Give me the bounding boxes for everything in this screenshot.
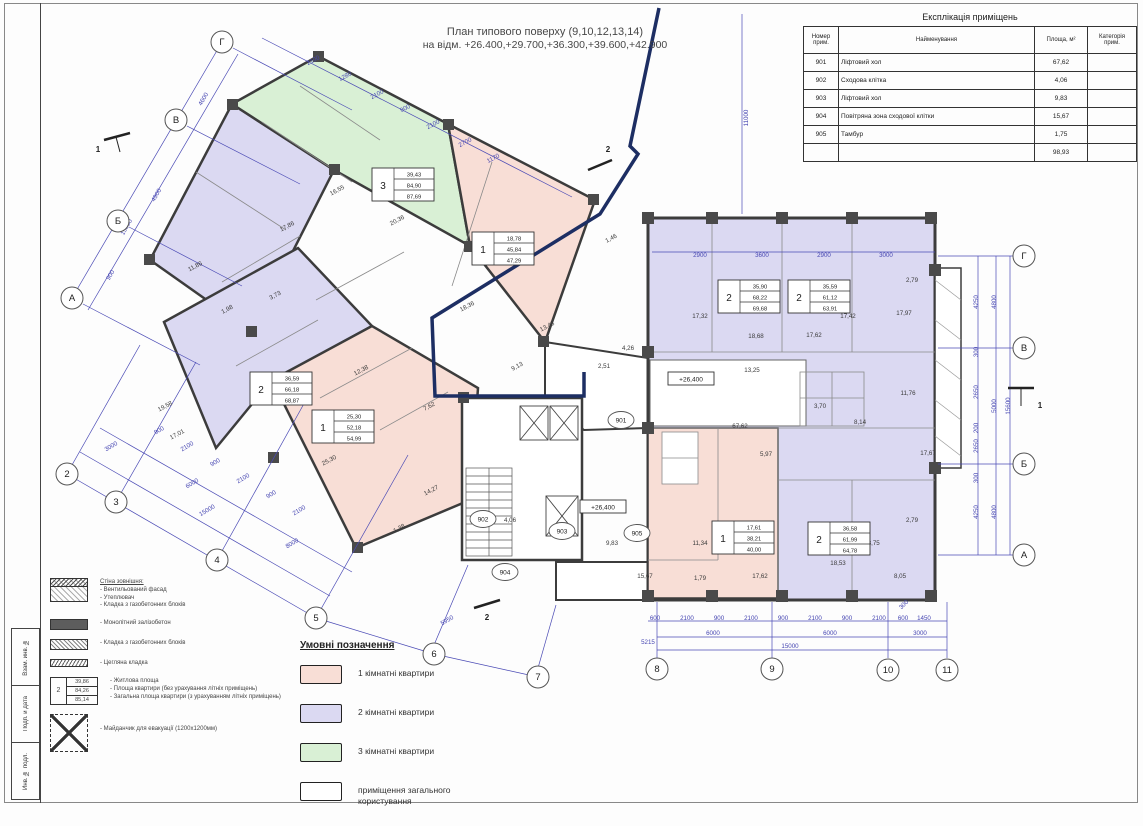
legend-item-2room: 2 кімнатні квартири xyxy=(300,704,500,723)
cell-number: 903 xyxy=(804,90,839,108)
cell-name: Сходова клітка xyxy=(839,72,1035,90)
stamp-sample-total: 85,14 xyxy=(67,696,97,704)
materials-monolith-row: - Монолітний залізобетон xyxy=(50,619,300,630)
cell-area-total: 98,93 xyxy=(1035,144,1088,162)
materials-legend: Стіна зовнішня:- Вентильований фасад - У… xyxy=(50,578,300,761)
col-header-area: Площа, м² xyxy=(1035,27,1088,54)
cell-category xyxy=(1088,126,1137,144)
monolith-label: - Монолітний залізобетон xyxy=(100,619,171,630)
cell-area: 1,75 xyxy=(1035,126,1088,144)
stamp-notes: - Житлова площа - Площа квартири (без ур… xyxy=(110,677,281,705)
explication-table: Експлікація приміщень Номер прим. Наймен… xyxy=(803,12,1137,162)
legend-label: 2 кімнатні квартири xyxy=(358,704,434,718)
table-row: 902 Сходова клітка 4,06 xyxy=(804,72,1137,90)
exterior-wall-swatch xyxy=(50,578,88,602)
frame-stamp-column: Взам. инв. № Подп. и дата Инв. № подл. xyxy=(11,628,40,800)
cell-area: 4,06 xyxy=(1035,72,1088,90)
legend-label: приміщення загального користування xyxy=(358,782,478,806)
cell-name: Ліфтовий хол xyxy=(839,54,1035,72)
brick-swatch xyxy=(50,659,88,667)
legend-title: Умовні позначення xyxy=(300,640,500,651)
frame-stamp-inv: Инв. № подл. xyxy=(11,742,40,800)
drawing-title-line2: на відм. +26.400,+29.700,+36.300,+39.600… xyxy=(355,39,735,51)
cell-name xyxy=(839,144,1035,162)
stamp-sample-apt: 84,26 xyxy=(67,687,97,696)
cell-category xyxy=(1088,72,1137,90)
swatch-common xyxy=(300,782,342,801)
frame-inner-line xyxy=(40,3,41,803)
cell-area: 9,83 xyxy=(1035,90,1088,108)
cell-category xyxy=(1088,144,1137,162)
table-row: 904 Повітряна зона сходової клітки 15,67 xyxy=(804,108,1137,126)
stamp-sample-living: 39,86 xyxy=(67,678,97,687)
stamp-sample: 2 39,86 84,26 85,14 xyxy=(50,677,98,705)
wall-title: Стіна зовнішня: xyxy=(100,579,144,585)
cell-number xyxy=(804,144,839,162)
legend-item-1room: 1 кімнатні квартири xyxy=(300,665,500,684)
drawing-title: План типового поверху (9,10,12,13,14) на… xyxy=(355,26,735,51)
brick-label: - Цегляна кладка xyxy=(100,659,148,668)
cell-category xyxy=(1088,90,1137,108)
frame-stamp-label: Инв. № подл. xyxy=(23,753,29,790)
cell-name: Повітряна зона сходової клітки xyxy=(839,108,1035,126)
cell-area: 15,67 xyxy=(1035,108,1088,126)
cell-number: 902 xyxy=(804,72,839,90)
blocks-label: - Кладка з газобетонних блоків xyxy=(100,639,185,650)
swatch-1room xyxy=(300,665,342,684)
cell-category xyxy=(1088,54,1137,72)
legend-item-common: приміщення загального користування xyxy=(300,782,500,806)
frame-stamp-vzam: Взам. инв. № xyxy=(11,628,40,685)
explication-title: Експлікація приміщень xyxy=(803,12,1137,22)
cell-name: Тамбур xyxy=(839,126,1035,144)
evacuation-pad-icon xyxy=(50,714,88,752)
table-row: 903 Ліфтовий хол 9,83 xyxy=(804,90,1137,108)
table-total-row: 98,93 xyxy=(804,144,1137,162)
materials-brick-row: - Цегляна кладка xyxy=(50,659,300,668)
materials-wall-row: Стіна зовнішня:- Вентильований фасад - У… xyxy=(50,578,300,610)
cell-number: 905 xyxy=(804,126,839,144)
cell-category xyxy=(1088,108,1137,126)
drawing-sheet: { "title": { "line1": "План типового пов… xyxy=(0,0,1143,807)
col-header-category: Категорія прим. xyxy=(1088,27,1137,54)
legend-item-3room: 3 кімнатні квартири xyxy=(300,743,500,762)
legend-label: 1 кімнатні квартири xyxy=(358,665,434,679)
cell-area: 67,62 xyxy=(1035,54,1088,72)
monolith-swatch xyxy=(50,619,88,630)
drawing-title-line1: План типового поверху (9,10,12,13,14) xyxy=(355,26,735,38)
stamp-sample-rooms: 2 xyxy=(51,678,67,704)
swatch-2room xyxy=(300,704,342,723)
evac-label: - Майданчик для евакуації (1200х1200мм) xyxy=(100,714,217,752)
table-row: 905 Тамбур 1,75 xyxy=(804,126,1137,144)
frame-stamp-label: Взам. инв. № xyxy=(23,639,29,676)
col-header-name: Найменування xyxy=(839,27,1035,54)
apartment-legend: Умовні позначення 1 кімнатні квартири 2 … xyxy=(300,640,500,826)
cell-name: Ліфтовий хол xyxy=(839,90,1035,108)
cell-number: 901 xyxy=(804,54,839,72)
blocks-swatch xyxy=(50,639,88,650)
swatch-3room xyxy=(300,743,342,762)
table-row: 901 Ліфтовий хол 67,62 xyxy=(804,54,1137,72)
materials-evac-row: - Майданчик для евакуації (1200х1200мм) xyxy=(50,714,300,752)
frame-stamp-label: Подп. и дата xyxy=(23,696,29,731)
col-header-number: Номер прим. xyxy=(804,27,839,54)
frame-stamp-podp: Подп. и дата xyxy=(11,685,40,742)
legend-label: 3 кімнатні квартири xyxy=(358,743,434,757)
materials-stamp-row: 2 39,86 84,26 85,14 - Житлова площа - Пл… xyxy=(50,677,300,705)
materials-blocks-row: - Кладка з газобетонних блоків xyxy=(50,639,300,650)
wall-lines: - Вентильований фасад - Утеплювач - Клад… xyxy=(100,587,185,610)
cell-number: 904 xyxy=(804,108,839,126)
explication-header-row: Номер прим. Найменування Площа, м² Катег… xyxy=(804,27,1137,54)
